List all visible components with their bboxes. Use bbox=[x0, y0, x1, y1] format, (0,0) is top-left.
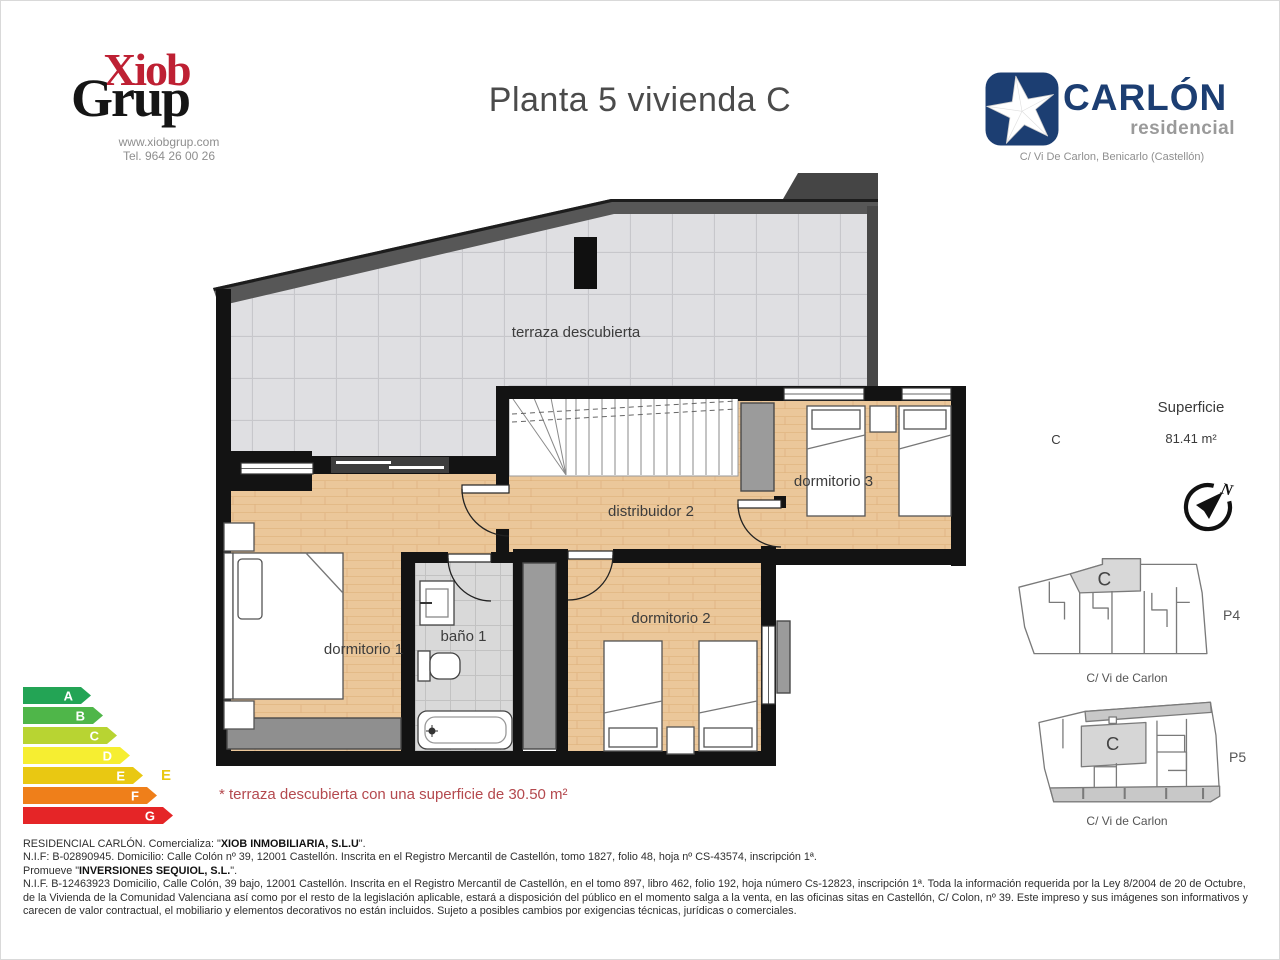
terrace-surface-note: * terraza descubierta con una superficie… bbox=[219, 786, 568, 803]
legal-line-2: N.I.F: B-02890945. Domicilio: Calle Coló… bbox=[23, 851, 1257, 864]
legal-footer: RESIDENCIAL CARLÓN. Comercializa: "XIOB … bbox=[23, 838, 1257, 918]
locator-p4-plate: P4 bbox=[1223, 607, 1240, 623]
svg-text:C: C bbox=[90, 728, 100, 743]
terrace-slider-door bbox=[331, 457, 449, 473]
locator-p5-street: C/ Vi de Carlon bbox=[1047, 814, 1207, 828]
developer-star-logo bbox=[984, 71, 1060, 147]
locator-p4-street: C/ Vi de Carlon bbox=[1047, 671, 1207, 685]
floor-plan-sheet: terraza descubierta distribuidor 2 dormi… bbox=[0, 0, 1280, 960]
energy-bar-A: A bbox=[23, 685, 175, 705]
legal-line-1: RESIDENCIAL CARLÓN. Comercializa: "XIOB … bbox=[23, 838, 1257, 851]
room-label-bedroom3: dormitorio 3 bbox=[771, 473, 896, 490]
surface-heading: Superficie bbox=[1141, 399, 1241, 416]
energy-bar-C: C bbox=[23, 725, 175, 745]
building-locator-p4: C bbox=[1009, 553, 1214, 665]
surface-unit-letter: C bbox=[1041, 432, 1071, 447]
room-label-bedroom2: dormitorio 2 bbox=[606, 610, 736, 627]
room-label-hall: distribuidor 2 bbox=[586, 503, 716, 520]
svg-text:N: N bbox=[1218, 480, 1236, 500]
surface-area-value: 81.41 m² bbox=[1141, 431, 1241, 446]
legal-line-3: Promueve "INVERSIONES SEQUIOL, S.L.". bbox=[23, 865, 1257, 878]
building-locator-p5: C bbox=[1021, 693, 1233, 811]
developer-address: C/ Vi De Carlon, Benicarlo (Castellón) bbox=[981, 151, 1243, 163]
energy-bar-E: EE bbox=[23, 765, 175, 785]
locator-p5-plate: P5 bbox=[1229, 749, 1246, 765]
agency-website: www.xiobgrup.com bbox=[69, 135, 269, 149]
energy-bar-B: B bbox=[23, 705, 175, 725]
staircase bbox=[509, 397, 738, 476]
svg-text:A: A bbox=[64, 688, 74, 703]
svg-text:D: D bbox=[103, 748, 112, 763]
energy-bar-F: F bbox=[23, 785, 175, 805]
room-label-terrace: terraza descubierta bbox=[501, 324, 651, 341]
legal-paragraph: N.I.F. B-12463923 Domicilio, Calle Colón… bbox=[23, 878, 1257, 918]
svg-text:G: G bbox=[145, 808, 155, 823]
svg-text:C: C bbox=[1106, 733, 1119, 754]
chimney bbox=[574, 237, 597, 289]
energy-bar-D: D bbox=[23, 745, 175, 765]
energy-bar-G: G bbox=[23, 805, 175, 825]
room-label-bath1: baño 1 bbox=[426, 628, 501, 645]
roof-notch bbox=[783, 173, 878, 199]
svg-text:B: B bbox=[76, 708, 85, 723]
developer-name: CARLÓN bbox=[1063, 77, 1227, 119]
svg-text:C: C bbox=[1098, 569, 1112, 590]
agency-phone: Tel. 964 26 00 26 bbox=[69, 149, 269, 163]
developer-tagline: residencial bbox=[1130, 118, 1235, 140]
svg-text:F: F bbox=[131, 788, 139, 803]
energy-rating-chart: ABCDEEFG bbox=[23, 685, 175, 825]
svg-text:E: E bbox=[116, 768, 125, 783]
energy-current-rating: E bbox=[161, 767, 171, 784]
north-compass-icon: N bbox=[1179, 478, 1237, 536]
room-label-bedroom1: dormitorio 1 bbox=[301, 641, 426, 658]
